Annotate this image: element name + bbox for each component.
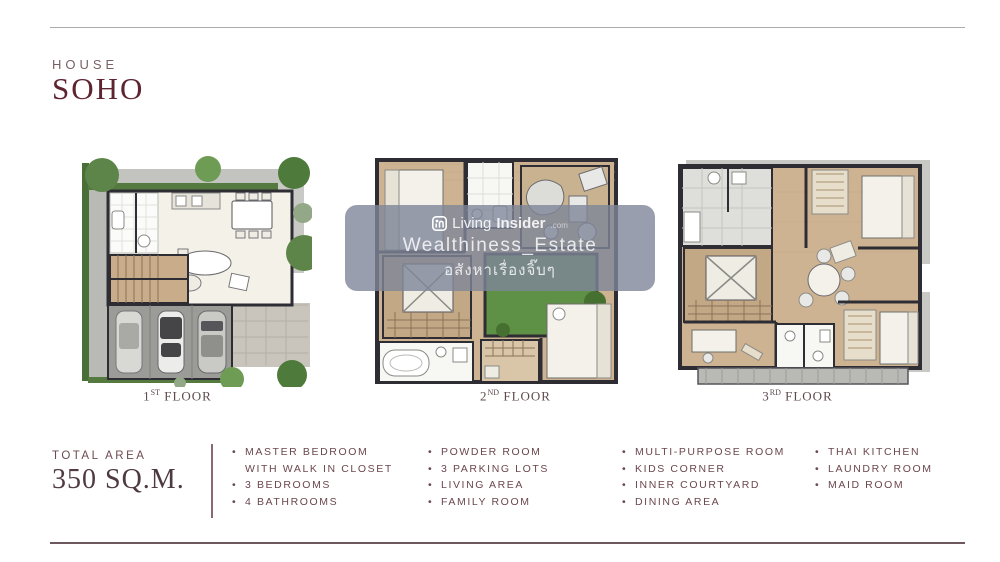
brochure-page: HOUSE SOHO [0,0,1000,562]
floor-word: FLOOR [785,388,833,403]
floorplan-1st-floor [80,153,312,392]
walk-in-closet [481,340,539,382]
feature-column-4: THAI KITCHEN LAUNDRY ROOM MAID ROOM [815,444,933,494]
feature-item: MASTER BEDROOM [232,444,393,461]
floor-ordinal: ND [488,388,500,397]
watermark-thai-tagline: อสังหาเรื่องจิ๊บๆ [444,258,556,282]
car-1 [116,311,142,373]
feature-item: 4 BATHROOMS [232,494,393,511]
feature-item: MULTI-PURPOSE ROOM [622,444,785,461]
feature-column-2: POWDER ROOM 3 PARKING LOTS LIVING AREA F… [428,444,549,510]
floor-ordinal: RD [770,388,781,397]
watermark-overlay: Living Insider .com Wealthiness_Estate อ… [345,205,655,291]
floor-label-3rd: 3RD FLOOR [750,388,845,404]
feature-item-continuation: WITH WALK IN CLOSET [232,461,393,478]
feature-item: FAMILY ROOM [428,494,549,511]
floor-number: 1 [143,388,151,403]
balcony [698,368,908,384]
total-area-label: TOTAL AREA [52,450,185,462]
project-name: SOHO [52,74,144,104]
feature-item: MAID ROOM [815,477,933,494]
stairs [110,255,188,303]
total-area-block: TOTAL AREA 350 SQ.M. [52,450,185,496]
master-bedroom [541,304,611,382]
floor-number: 2 [480,388,488,403]
floor-label-2nd: 2ND FLOOR [468,388,563,404]
feature-item: DINING AREA [622,494,785,511]
floor-number: 3 [762,388,770,403]
master-bathroom [379,342,473,382]
feature-column-1: MASTER BEDROOM WITH WALK IN CLOSET 3 BED… [232,444,393,510]
feature-item: 3 BEDROOMS [232,477,393,494]
stairs [684,248,772,322]
car-2 [158,311,184,373]
car-3 [198,311,226,373]
feature-item: THAI KITCHEN [815,444,933,461]
watermark-brand: Living Insider .com [432,215,568,232]
feature-column-3: MULTI-PURPOSE ROOM KIDS CORNER INNER COU… [622,444,785,510]
thai-kitchen-laundry [682,168,772,246]
floorplan-3rd-drawing [672,152,934,390]
watermark-account-name: Wealthiness_Estate [403,235,598,257]
floor-ordinal: ST [151,388,160,397]
feature-item: 3 PARKING LOTS [428,461,549,478]
floor-word: FLOOR [503,388,551,403]
floor-word: FLOOR [164,388,212,403]
bottom-divider-line [50,542,965,544]
floorplan-3rd-floor [672,152,934,395]
total-area-value: 350 SQ.M. [52,464,185,496]
brand-suffix: .com [551,221,568,230]
brand-bold: Insider [496,215,545,232]
feature-item: LAUNDRY ROOM [815,461,933,478]
vertical-divider [211,444,213,518]
floor-label-1st: 1ST FLOOR [130,388,225,404]
page-title: HOUSE SOHO [52,57,144,104]
house-body [108,191,292,305]
feature-item: POWDER ROOM [428,444,549,461]
house-subtitle: HOUSE [52,57,144,72]
brand-prefix: Living [452,215,491,232]
feature-item: INNER COURTYARD [622,477,785,494]
living-insider-logo-icon [432,216,447,231]
feature-item: LIVING AREA [428,477,549,494]
bathroom-area [110,193,158,253]
dining-table [232,193,272,238]
top-divider-line [50,27,965,28]
bathrooms [776,324,834,368]
floorplan-1st-drawing [80,153,312,387]
feature-item: KIDS CORNER [622,461,785,478]
kitchen-counter [172,193,220,209]
